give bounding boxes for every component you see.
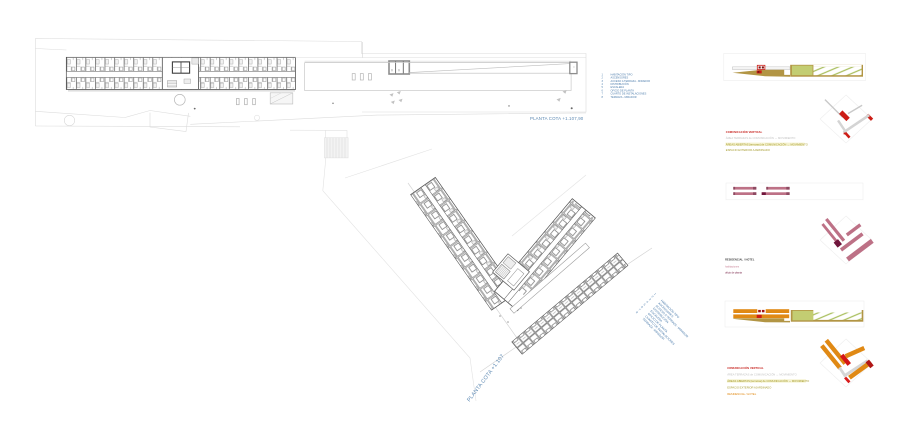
svg-text:RESIDENCIAL / HOTEL: RESIDENCIAL / HOTEL xyxy=(725,258,755,261)
svg-text:TERRAZA - MIRADOR: TERRAZA - MIRADOR xyxy=(611,95,637,99)
svg-text:PLANTA COTA +1.107,90: PLANTA COTA +1.107,90 xyxy=(530,116,584,121)
svg-text:RESIDENCIAL / HOTEL: RESIDENCIAL / HOTEL xyxy=(727,392,757,396)
svg-text:ESPACIO EXTERIOR AJARDINADO: ESPACIO EXTERIOR AJARDINADO xyxy=(726,148,770,152)
svg-text:ESPACIO EXTERIOR AJARDINADO: ESPACIO EXTERIOR AJARDINADO xyxy=(727,385,771,389)
svg-text:habitaciones: habitaciones xyxy=(725,265,740,268)
svg-text:oficio de planta: oficio de planta xyxy=(725,272,742,275)
